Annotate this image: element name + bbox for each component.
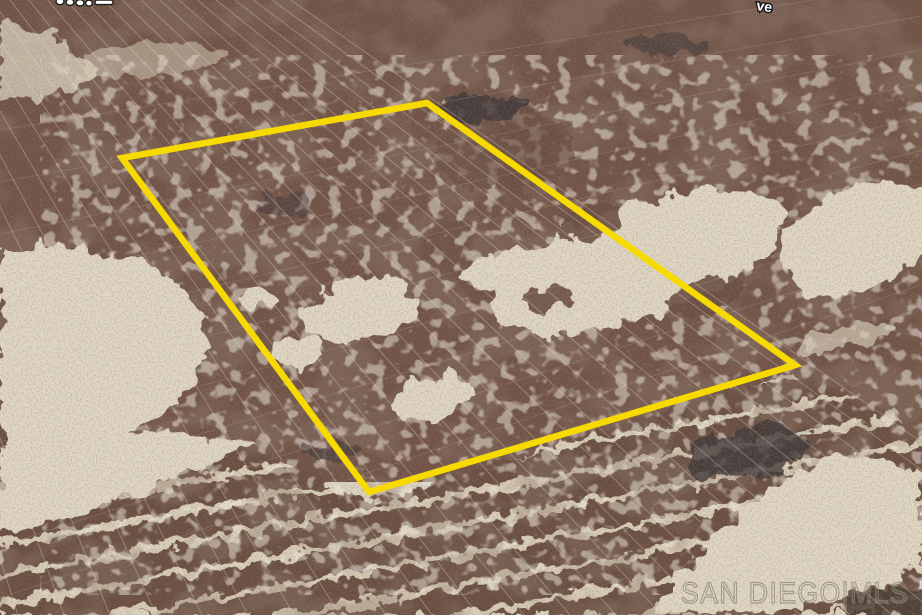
watermark: SAN DIEGO|MLS	[681, 577, 909, 610]
street-label-fragment-right: ve	[756, 0, 774, 15]
grain-layer	[0, 0, 922, 615]
satellite-photo: ve SAN DIEGO|MLS	[0, 0, 922, 615]
listing-photo: ve SAN DIEGO|MLS	[0, 0, 922, 615]
